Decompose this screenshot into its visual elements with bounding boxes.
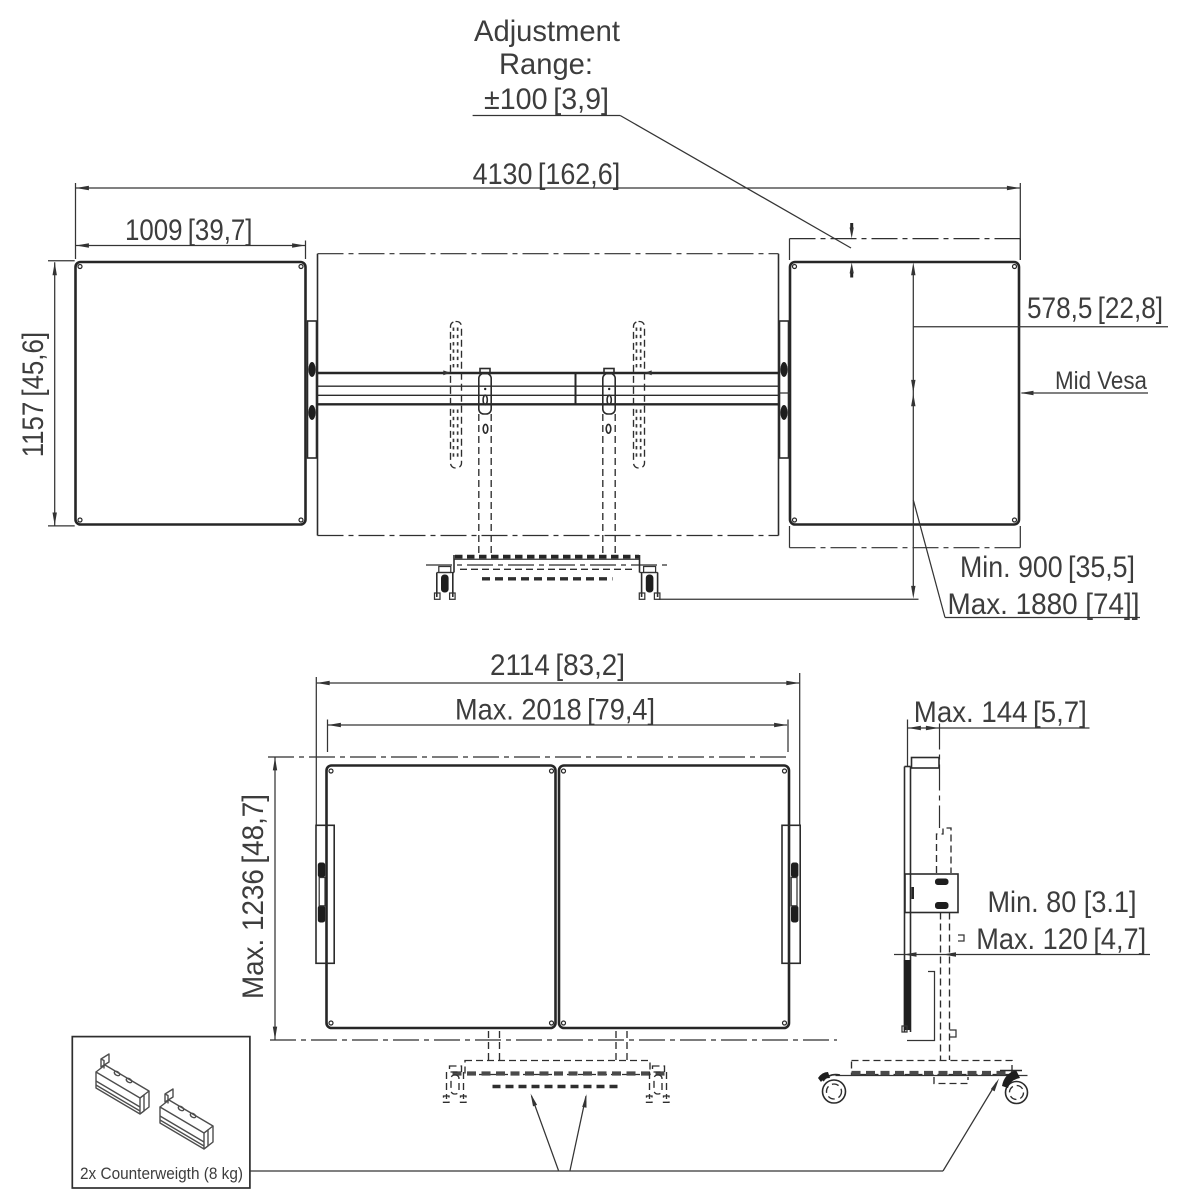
svg-text:578,5 [22,8]: 578,5 [22,8] [1027,292,1163,325]
svg-text:1157 [45,6]: 1157 [45,6] [17,332,50,457]
svg-text:Max. 1236 [48,7]: Max. 1236 [48,7] [237,794,270,999]
svg-text:Max. 2018 [79,4]: Max. 2018 [79,4] [455,694,655,727]
svg-text:Min. 900 [35,5]: Min. 900 [35,5] [960,551,1135,584]
svg-text:1009 [39,7]: 1009 [39,7] [125,214,253,247]
svg-text:Mid Vesa: Mid Vesa [1055,367,1147,395]
svg-text:Max. 120 [4,7]: Max. 120 [4,7] [976,923,1146,956]
svg-text:Max. 1880 [74]]: Max. 1880 [74]] [948,588,1140,621]
svg-text:±100 [3,9]: ±100 [3,9] [484,83,609,116]
svg-text:2114 [83,2]: 2114 [83,2] [490,649,625,682]
svg-text:4130 [162,6]: 4130 [162,6] [473,158,621,191]
svg-text:Range:: Range: [499,48,593,81]
svg-text:Adjustment: Adjustment [474,15,621,48]
svg-text:Max. 144 [5,7]: Max. 144 [5,7] [914,696,1087,729]
svg-text:Min. 80 [3.1]: Min. 80 [3.1] [988,886,1137,919]
svg-text:2x Counterweigth (8 kg): 2x Counterweigth (8 kg) [80,1164,243,1183]
